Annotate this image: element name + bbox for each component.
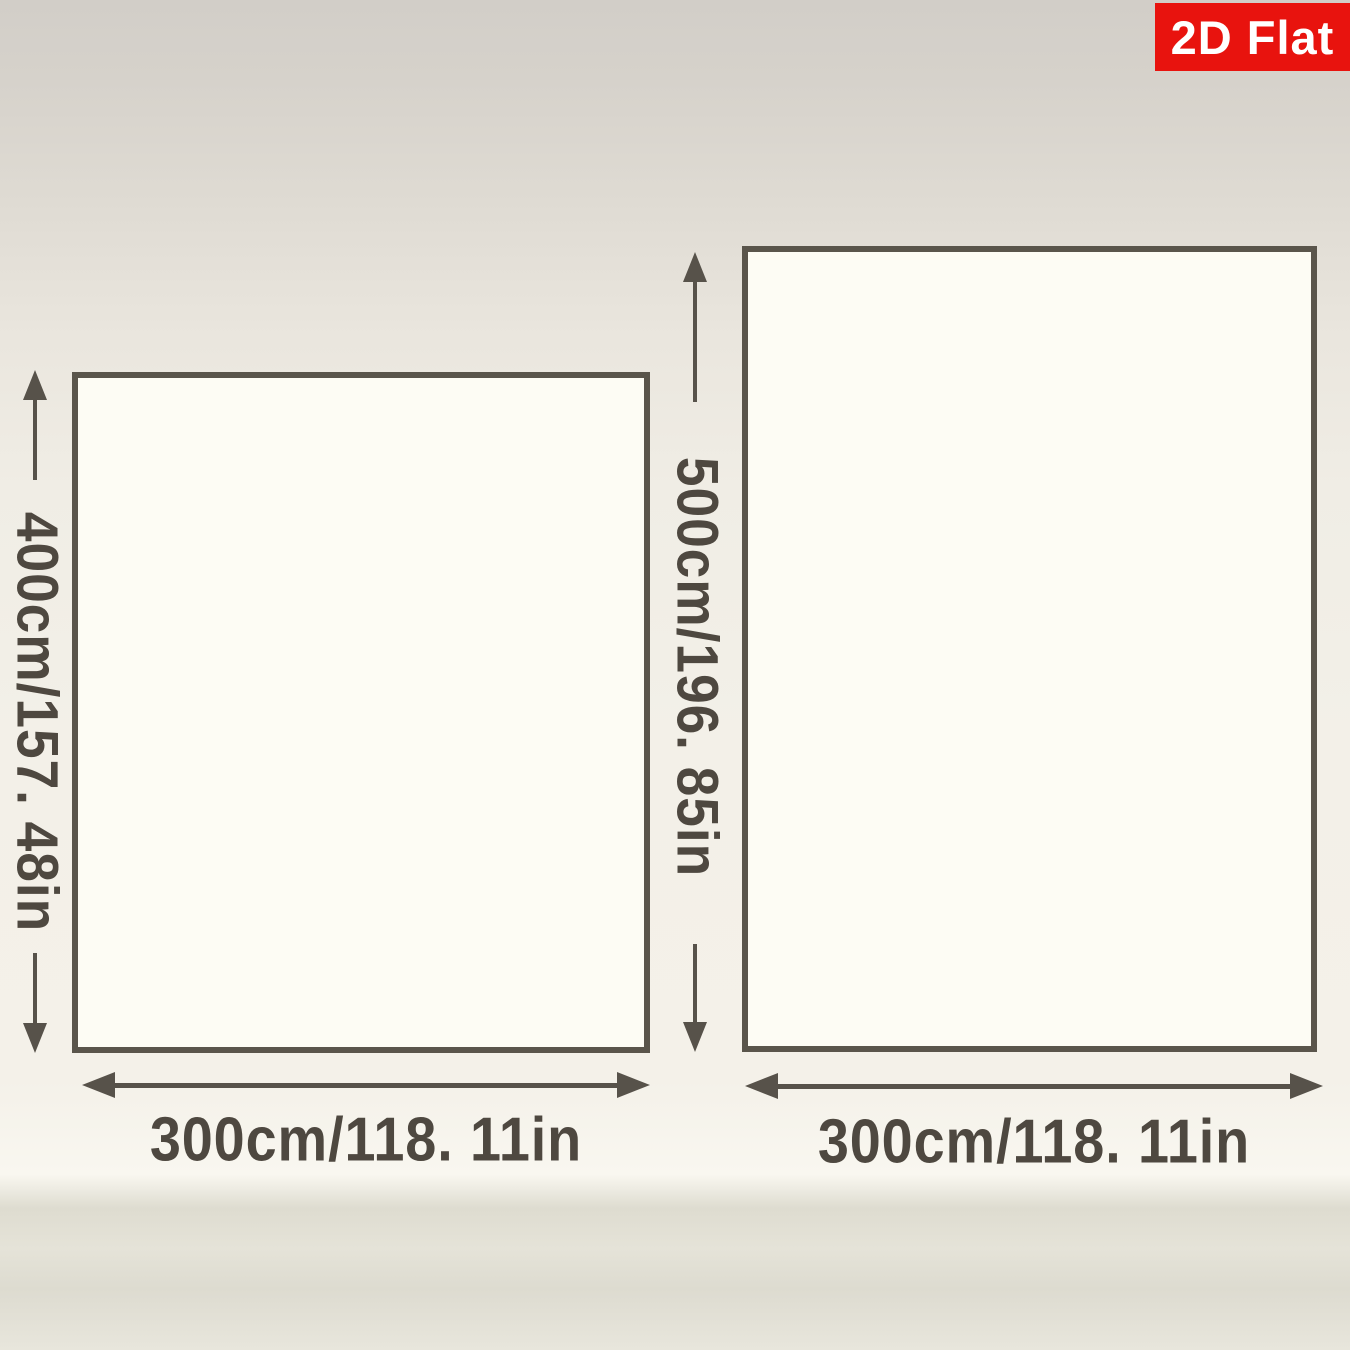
2d-flat-badge: 2D Flat [1155, 3, 1350, 71]
dimension-line [33, 398, 37, 480]
up-arrow-icon [683, 252, 707, 282]
right-arrow-icon [617, 1072, 650, 1098]
width-label-left: 300cm/118. 11in [150, 1105, 582, 1176]
dimension-line [776, 1084, 1292, 1089]
down-arrow-icon [23, 1023, 47, 1053]
product-dimension-diagram: 2D Flat 400cm/157. 48in 500cm/196. 85in … [0, 0, 1350, 1350]
dimension-line [693, 944, 697, 1022]
panel-left [72, 372, 650, 1053]
left-arrow-icon [745, 1073, 778, 1099]
right-arrow-icon [1290, 1073, 1323, 1099]
dimension-line [693, 280, 697, 402]
dimension-line [33, 953, 37, 1023]
down-arrow-icon [683, 1022, 707, 1052]
width-label-right: 300cm/118. 11in [818, 1107, 1250, 1178]
height-label-right: 500cm/196. 85in [664, 457, 731, 877]
panel-right [742, 246, 1317, 1052]
up-arrow-icon [23, 370, 47, 400]
dimension-line [113, 1083, 619, 1088]
height-label-left: 400cm/157. 48in [4, 512, 71, 932]
left-arrow-icon [82, 1072, 115, 1098]
